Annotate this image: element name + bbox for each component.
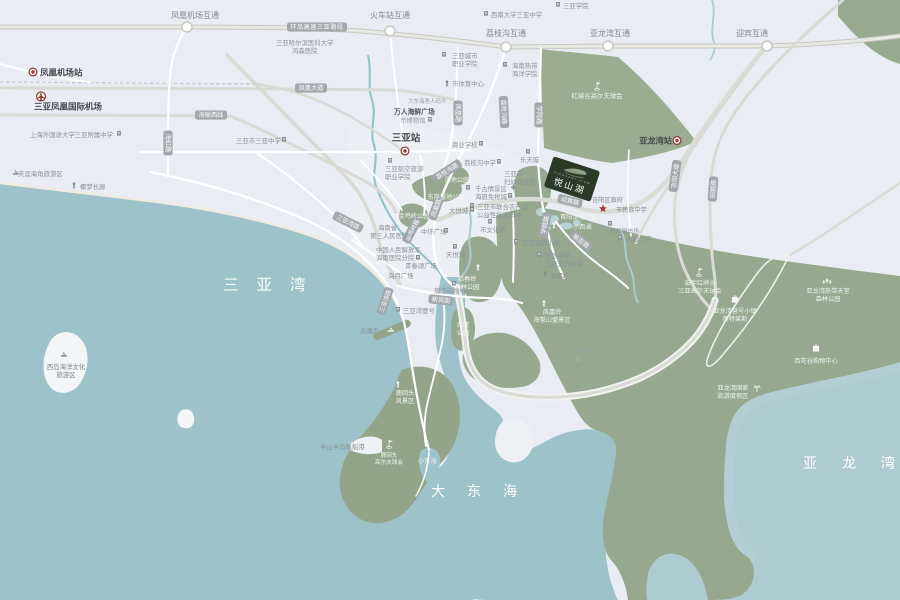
svg-text:天悦城: 天悦城 <box>446 250 466 259</box>
svg-text:亚龙湾站: 亚龙湾站 <box>639 136 673 146</box>
svg-text:新风镇市场: 新风镇市场 <box>610 227 639 235</box>
svg-text:三亚城市: 三亚城市 <box>452 51 478 60</box>
svg-text:海洋学院: 海洋学院 <box>512 69 538 78</box>
svg-text:第三人民医院: 第三人民医院 <box>370 231 409 240</box>
svg-text:市民族中学: 市民族中学 <box>616 206 647 214</box>
svg-text:鹿回头: 鹿回头 <box>381 451 398 459</box>
svg-text:凤凰路: 凤凰路 <box>454 104 462 123</box>
svg-text:凤凰岭: 凤凰岭 <box>543 308 562 316</box>
svg-text:万人海鲜广场: 万人海鲜广场 <box>393 107 435 116</box>
svg-text:田独路: 田独路 <box>709 179 718 199</box>
svg-text:大悦城: 大悦城 <box>449 206 469 215</box>
svg-text:三亚航空旅游: 三亚航空旅游 <box>385 164 424 173</box>
svg-text:森林公园: 森林公园 <box>816 295 841 303</box>
svg-text:大东海渔人码头: 大东海渔人码头 <box>408 97 447 105</box>
svg-text:吉阳小学: 吉阳小学 <box>626 234 652 243</box>
svg-text:荔枝沟路: 荔枝沟路 <box>499 99 508 125</box>
svg-text:迎宾互通: 迎宾互通 <box>736 28 768 38</box>
svg-text:环岛高速三亚路段: 环岛高速三亚路段 <box>290 23 344 31</box>
svg-text:三亚凤凰国际机场: 三亚凤凰国际机场 <box>34 102 103 112</box>
svg-text:中国人民解放军: 中国人民解放军 <box>376 245 421 254</box>
svg-text:商业学校: 商业学校 <box>452 140 478 149</box>
svg-text:海月广场: 海月广场 <box>388 271 414 280</box>
svg-text:海榆西线: 海榆西线 <box>199 111 224 119</box>
svg-text:乐天城: 乐天城 <box>520 155 540 164</box>
svg-text:荔枝沟互通: 荔枝沟互通 <box>486 28 526 38</box>
svg-text:三亚站: 三亚站 <box>392 132 421 144</box>
svg-text:凤凰机场互通: 凤凰机场互通 <box>171 10 219 20</box>
svg-text:三亚湾壹号: 三亚湾壹号 <box>403 306 435 315</box>
svg-text:青春颂广场: 青春颂广场 <box>405 261 437 270</box>
svg-text:森林公园: 森林公园 <box>455 283 480 291</box>
svg-text:三亚高尔夫球会: 三亚高尔夫球会 <box>678 287 721 295</box>
svg-text:三亚市: 三亚市 <box>504 169 524 178</box>
svg-text:风景区: 风景区 <box>396 398 415 405</box>
svg-text:红峡谷高尔夫球会: 红峡谷高尔夫球会 <box>571 91 623 100</box>
svg-text:海誓山盟景区: 海誓山盟景区 <box>533 316 570 324</box>
svg-text:妇幼保健院: 妇幼保健院 <box>504 177 537 186</box>
svg-text:公益性批发市场: 公益性批发市场 <box>477 210 522 219</box>
svg-text:鸿森医院: 鸿森医院 <box>292 46 318 55</box>
svg-text:大东海: 大东海 <box>431 483 539 499</box>
svg-text:市文化馆: 市文化馆 <box>480 225 506 234</box>
svg-text:凤凰机场站: 凤凰机场站 <box>40 68 83 78</box>
svg-text:小东海: 小东海 <box>418 457 437 465</box>
svg-text:海南医院分院: 海南医院分院 <box>376 253 415 262</box>
svg-text:三亚迎宾小学: 三亚迎宾小学 <box>522 238 561 247</box>
svg-text:海南省: 海南省 <box>378 223 398 232</box>
svg-text:旅游区: 旅游区 <box>56 370 76 379</box>
svg-text:临春岭: 临春岭 <box>458 275 477 283</box>
svg-text:椰梦长廊: 椰梦长廊 <box>80 182 106 191</box>
svg-text:学院路: 学院路 <box>535 106 543 125</box>
svg-text:火车站互通: 火车站互通 <box>370 10 410 20</box>
svg-text:三亚迎宾中学: 三亚迎宾中学 <box>545 259 584 268</box>
svg-text:海螺岭: 海螺岭 <box>550 271 570 280</box>
svg-text:奥特莱斯: 奥特莱斯 <box>723 315 748 323</box>
svg-text:市博物馆: 市博物馆 <box>400 116 426 125</box>
svg-text:三亚市三亚中学: 三亚市三亚中学 <box>236 136 281 145</box>
svg-text:市体育中心: 市体育中心 <box>452 79 485 88</box>
svg-text:湿地公园: 湿地公园 <box>445 176 470 184</box>
svg-text:红沙码头: 红沙码头 <box>566 345 592 354</box>
svg-text:凤凰大道: 凤凰大道 <box>299 84 324 92</box>
svg-text:东岸湿地公园: 东岸湿地公园 <box>427 193 464 201</box>
svg-text:公园: 公园 <box>457 330 469 337</box>
svg-text:鹿回头: 鹿回头 <box>396 389 415 397</box>
svg-text:西岛海洋文化: 西岛海洋文化 <box>47 362 86 371</box>
svg-text:高尔夫球会: 高尔夫球会 <box>375 458 403 466</box>
svg-text:旅游度假区: 旅游度假区 <box>718 392 749 400</box>
svg-text:亚龙湾互通: 亚龙湾互通 <box>590 28 630 38</box>
svg-text:小西湖: 小西湖 <box>573 223 592 231</box>
svg-text:半山半岛帆船港: 半山半岛帆船港 <box>320 442 365 451</box>
svg-text:三亚湾: 三亚湾 <box>223 276 324 294</box>
svg-text:荔枝沟中学: 荔枝沟中学 <box>464 158 497 167</box>
svg-text:凤凰岛: 凤凰岛 <box>360 326 379 335</box>
svg-text:首阳湿地公园: 首阳湿地公园 <box>560 213 597 221</box>
svg-text:海虹路: 海虹路 <box>164 134 172 153</box>
svg-text:海南热带: 海南热带 <box>512 61 538 70</box>
svg-text:西南大学三亚中学: 西南大学三亚中学 <box>491 10 543 19</box>
svg-text:白鹭: 白鹭 <box>457 321 470 329</box>
svg-text:中环广场: 中环广场 <box>421 227 447 236</box>
svg-text:三亚市联合农产品: 三亚市联合农产品 <box>477 202 528 211</box>
svg-text:上海外国语大学三亚附属中学: 上海外国语大学三亚附属中学 <box>30 130 114 139</box>
svg-text:亚龙湾: 亚龙湾 <box>803 455 900 471</box>
svg-text:海旅免税城: 海旅免税城 <box>475 192 508 201</box>
svg-text:宏宇红峡谷: 宏宇红峡谷 <box>685 279 716 287</box>
svg-text:巴朗中学: 巴朗中学 <box>545 251 571 260</box>
svg-text:吉阳区政府: 吉阳区政府 <box>592 196 623 204</box>
svg-text:亚龙湾营号小镇: 亚龙湾营号小镇 <box>713 307 756 315</box>
svg-text:亚龙湾热带天堂: 亚龙湾热带天堂 <box>806 287 849 295</box>
svg-text:职业学院: 职业学院 <box>385 172 411 181</box>
svg-text:千古情景区: 千古情景区 <box>475 184 508 193</box>
svg-text:三亚哈尔滨医科大学: 三亚哈尔滨医科大学 <box>276 38 334 47</box>
svg-text:天涯海角旅游区: 天涯海角旅游区 <box>18 169 63 178</box>
svg-text:百花谷购物中心: 百花谷购物中心 <box>794 357 837 365</box>
svg-text:金鸡岭公园: 金鸡岭公园 <box>399 212 430 220</box>
svg-text:三亚学院: 三亚学院 <box>563 1 589 10</box>
svg-text:职业学院: 职业学院 <box>452 59 478 68</box>
svg-text:亚龙湾国家: 亚龙湾国家 <box>718 384 749 392</box>
